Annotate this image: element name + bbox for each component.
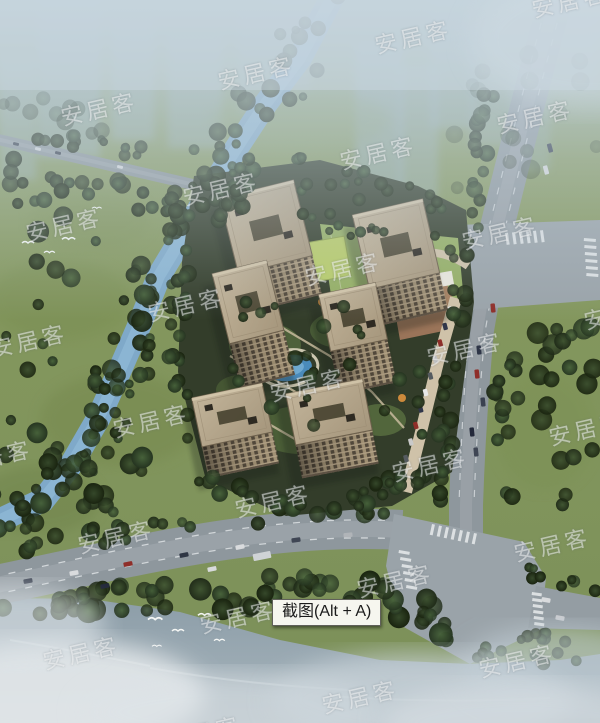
- screenshot-hint-button[interactable]: 截图(Alt + A): [272, 599, 381, 626]
- aerial-render-screenshot: 安居客安居客安居客安居客安居客安居客安居客安居客安居客安居客安居客安居客安居客安…: [0, 0, 600, 723]
- tower: [274, 379, 381, 490]
